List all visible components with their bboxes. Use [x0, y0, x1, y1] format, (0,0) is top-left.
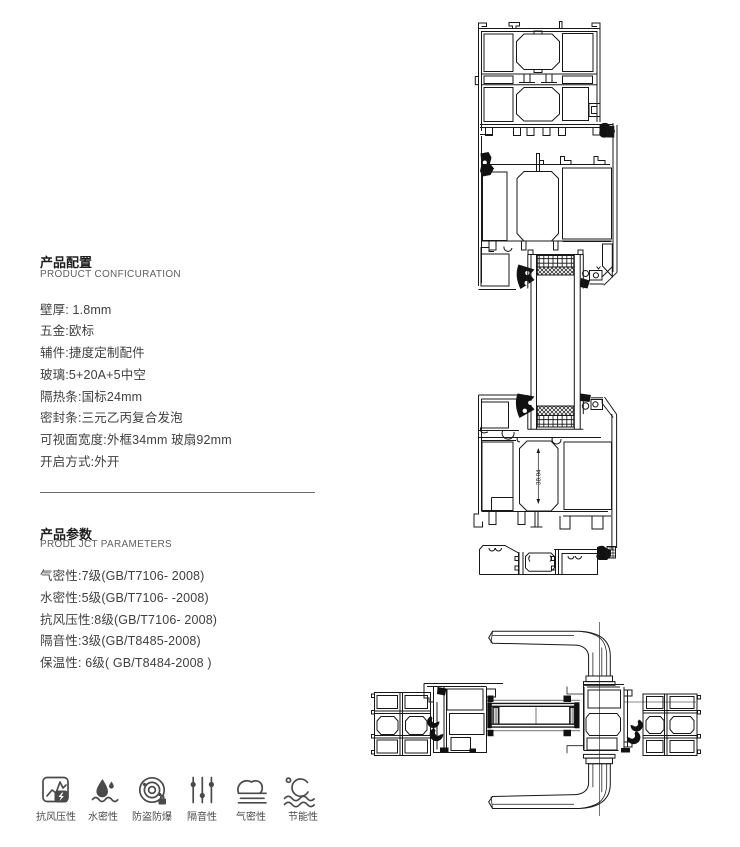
svg-text:38.04: 38.04	[536, 469, 543, 485]
